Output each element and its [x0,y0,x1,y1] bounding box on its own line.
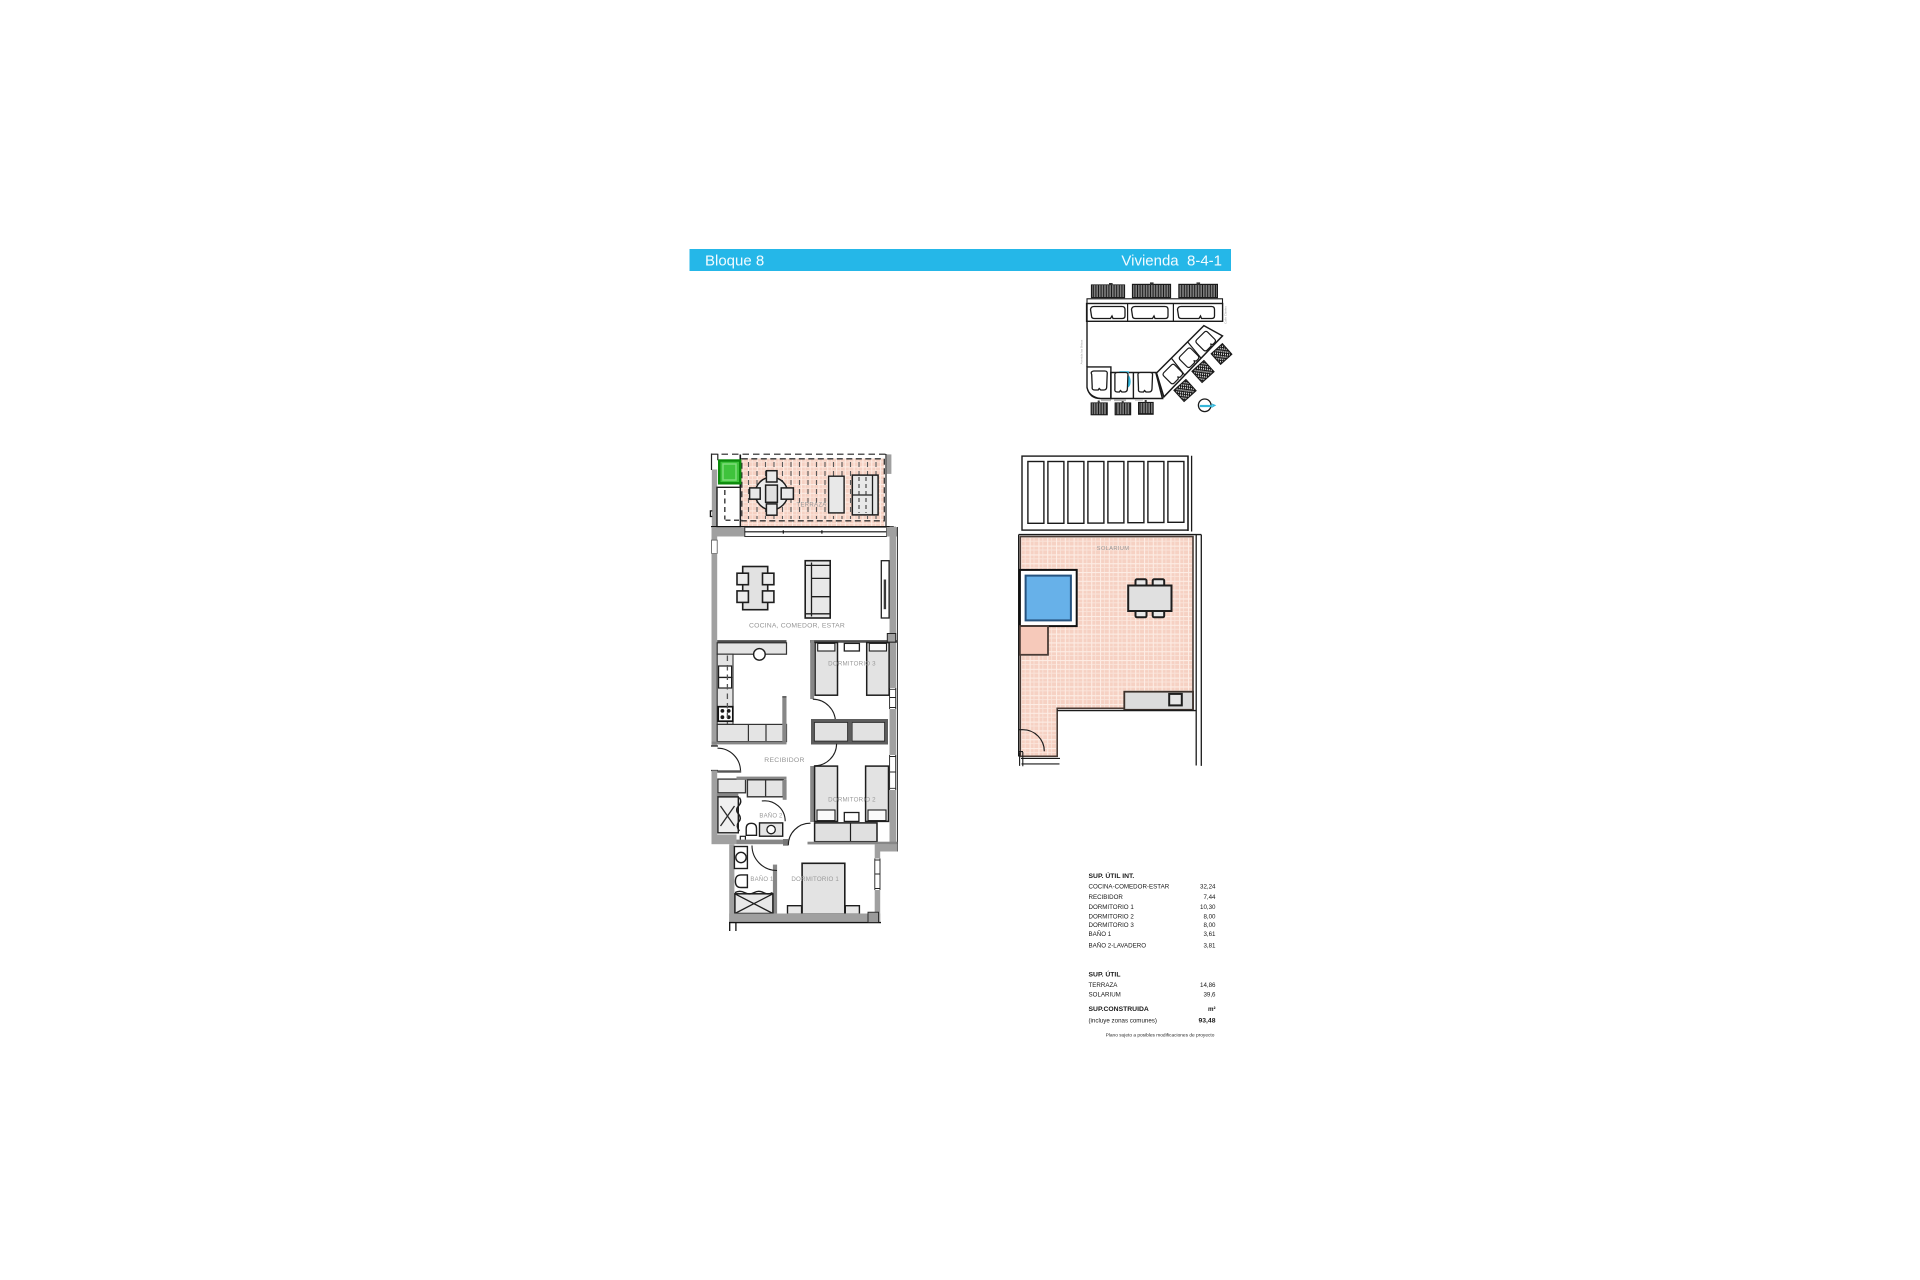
svg-text:32,24: 32,24 [1200,884,1216,891]
svg-text:DORMITORIO 3: DORMITORIO 3 [828,661,876,668]
svg-text:39,6: 39,6 [1203,992,1216,999]
svg-text:Vivienda 8-4-1: Vivienda 8-4-1 [1121,253,1222,270]
svg-text:8,00: 8,00 [1203,913,1216,920]
svg-text:Bloque 8: Bloque 8 [705,253,764,270]
svg-text:Calle Cibeles: Calle Cibeles [1224,306,1228,324]
svg-text:DORMITORIO 1: DORMITORIO 1 [791,876,839,883]
svg-text:RECIBIDOR: RECIBIDOR [1089,894,1124,901]
svg-text:Avenida las Brisas: Avenida las Brisas [1080,339,1084,364]
svg-text:93,48: 93,48 [1198,1018,1215,1025]
svg-text:3,81: 3,81 [1203,943,1216,950]
svg-text:m²: m² [1208,1006,1216,1013]
svg-text:14,86: 14,86 [1200,982,1216,989]
svg-text:BAÑO 1: BAÑO 1 [750,876,774,883]
svg-text:DORMITORIO 1: DORMITORIO 1 [1089,904,1135,911]
svg-text:DORMITORIO 2: DORMITORIO 2 [1089,913,1135,920]
svg-text:10,30: 10,30 [1200,904,1216,911]
svg-text:SUP.CONSTRUIDA: SUP.CONSTRUIDA [1089,1006,1149,1013]
svg-text:BAÑO 1: BAÑO 1 [1089,931,1112,938]
svg-text:COCINA, COMEDOR, ESTAR: COCINA, COMEDOR, ESTAR [749,623,845,630]
svg-text:RECIBIDOR: RECIBIDOR [764,757,804,764]
svg-text:SUP. ÚTIL INT.: SUP. ÚTIL INT. [1089,871,1135,880]
svg-text:Plano sujeto a posibles modifi: Plano sujeto a posibles modificaciones d… [1106,1033,1215,1039]
svg-text:SOLARIUM: SOLARIUM [1097,546,1130,552]
svg-text:COCINA-COMEDOR-ESTAR: COCINA-COMEDOR-ESTAR [1089,884,1170,891]
svg-text:TERRAZA: TERRAZA [797,503,827,509]
svg-text:BAÑO 2-LAVADERO: BAÑO 2-LAVADERO [1089,943,1147,950]
svg-text:SUP. ÚTIL: SUP. ÚTIL [1089,970,1121,979]
svg-text:(incluye zonas comunes): (incluye zonas comunes) [1089,1018,1157,1025]
svg-text:DORMITORIO 3: DORMITORIO 3 [1089,922,1135,929]
svg-text:DORMITORIO 2: DORMITORIO 2 [828,797,876,804]
svg-text:7,44: 7,44 [1203,894,1216,901]
svg-text:SOLARIUM: SOLARIUM [1089,992,1121,999]
svg-text:8,00: 8,00 [1203,922,1216,929]
svg-text:BAÑO 2: BAÑO 2 [759,813,783,820]
svg-text:TERRAZA: TERRAZA [1089,982,1119,989]
svg-text:3,61: 3,61 [1203,931,1216,938]
